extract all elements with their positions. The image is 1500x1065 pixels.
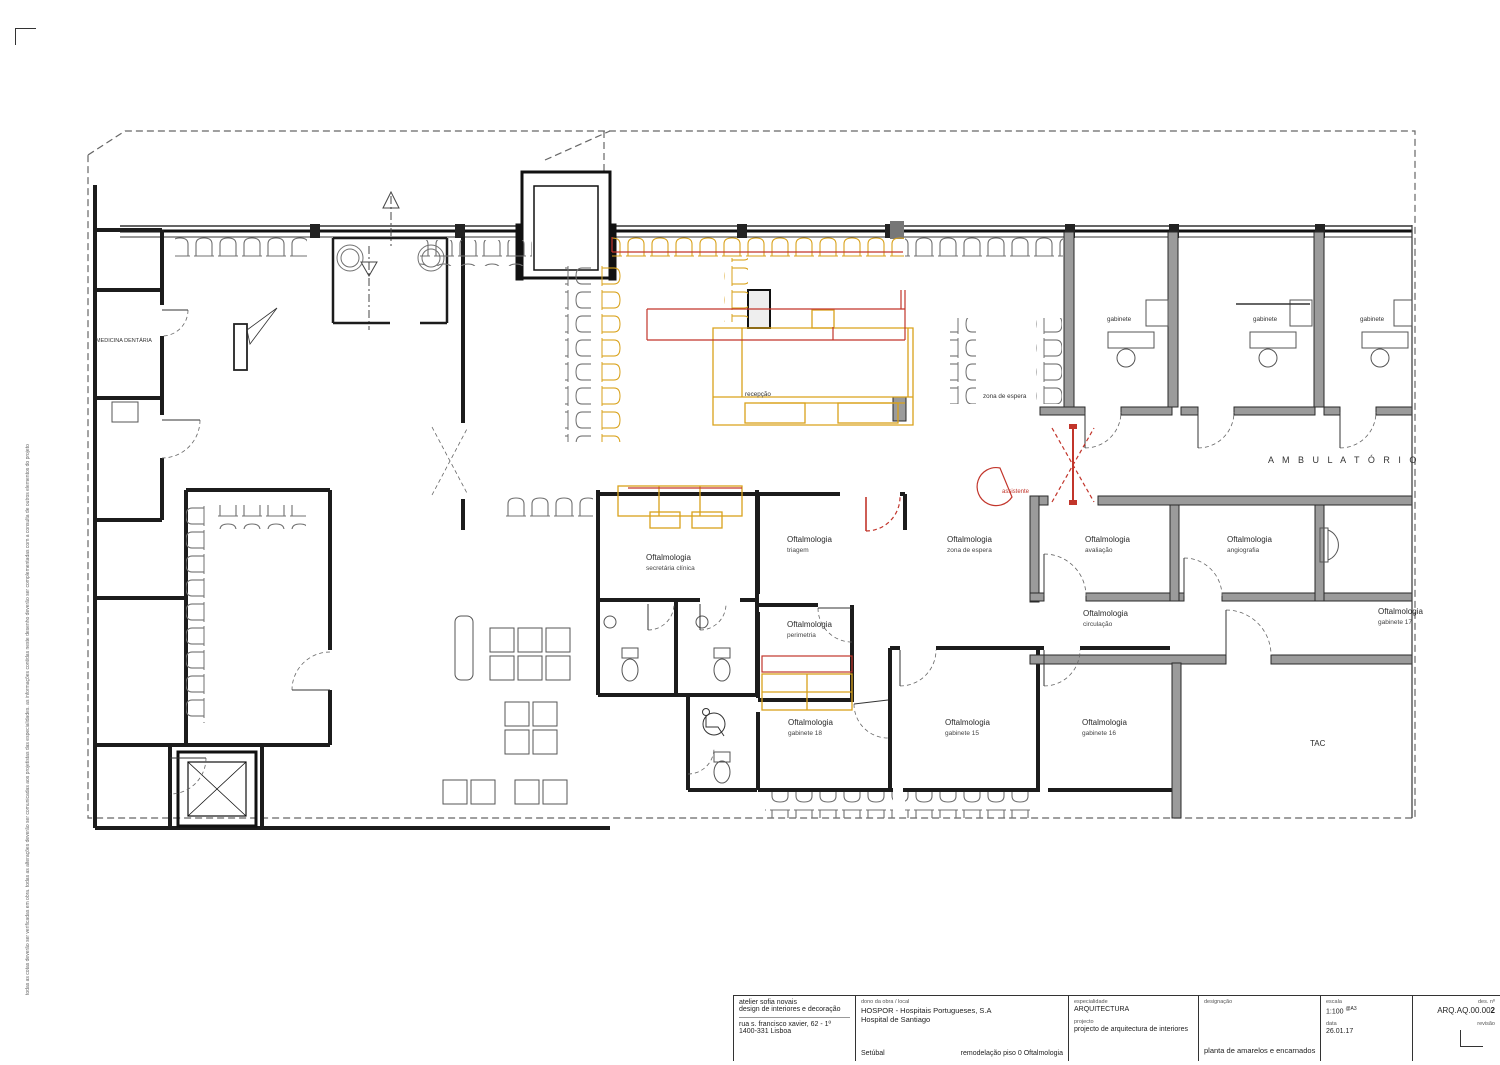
title-block-specialty: especialidade ARQUITECTURA projecto proj… [1068,996,1198,1061]
label-oft-gabinete16: Oftalmologia [1082,718,1127,727]
title-block-architect: atelier sofia novais design de interiore… [733,996,855,1061]
label-oft-gabinete17: Oftalmologia [1378,607,1423,616]
side-note: todas as cotas deverão ser verificadas e… [26,565,32,995]
label-oft-gabinete16-sub: gabinete 16 [1082,730,1116,737]
project-label: projecto [1074,1019,1193,1025]
label-medicina-dentaria: MEDICINA DENTÁRIA [96,337,152,344]
date-label: data [1326,1021,1407,1027]
label-gabinete-2: gabinete [1253,316,1278,323]
title-block: atelier sofia novais design de interiore… [733,995,1500,1061]
label-ambulatorio: A M B U L A T Ó R I O [1268,455,1419,465]
floor-plan: MEDICINA DENTÁRIA recepção zona de esper… [0,0,1500,1060]
label-gabinete-1: gabinete [1107,316,1132,323]
label-oft-secretaria-sub: secretária clínica [646,565,695,572]
owner-site: Hospital de Santiago [861,1015,1063,1024]
owner-label: dono da obra / local [861,999,1063,1005]
label-oft-zona-espera: Oftalmologia [947,535,992,544]
drawing-sheet: todas as cotas deverão ser verificadas e… [0,0,1500,1060]
label-oft-perimetria: Oftalmologia [787,620,832,629]
number-label: des. nº [1418,999,1495,1005]
label-oft-angiografia: Oftalmologia [1227,535,1272,544]
title-block-designation: designação planta de amarelos e encarnad… [1198,996,1320,1061]
scale-value: 1:100 [1326,1008,1344,1015]
drawing-number: ARQ.AQ.00.00 [1437,1006,1490,1015]
scale-format: @A3 [1345,1006,1356,1012]
project-phase: remodelação piso 0 Oftalmologia [961,1050,1063,1057]
owner-city: Setúbal [861,1050,885,1057]
label-oft-gabinete18: Oftalmologia [788,718,833,727]
label-oft-angiografia-sub: angiografia [1227,547,1260,554]
label-tac: TAC [1310,739,1326,748]
label-oft-triagem: Oftalmologia [787,535,832,544]
label-oft-secretaria: Oftalmologia [646,553,691,562]
designation-label: designação [1204,999,1315,1005]
label-oft-gabinete17-sub: gabinete 17 [1378,619,1412,626]
furniture-existing [112,234,1412,818]
label-oft-circulacao-sub: circulação [1083,621,1113,628]
assistant-chair-icon [977,468,1012,506]
specialty-label: especialidade [1074,999,1193,1005]
specialty-value: ARQUITECTURA [1074,1006,1193,1013]
title-block-owner: dono da obra / local HOSPOR - Hospitais … [855,996,1068,1061]
label-oft-gabinete15-sub: gabinete 15 [945,730,979,737]
label-oft-gabinete18-sub: gabinete 18 [788,730,822,737]
label-zona-espera-top: zona de espera [983,393,1027,400]
label-assistente: assistente [1002,489,1030,495]
label-gabinete-3: gabinete [1360,316,1385,323]
owner-name: HOSPOR - Hospitais Portugueses, S.A [861,1006,1063,1015]
architect-address2: 1400-331 Lisboa [739,1028,850,1035]
label-oft-avaliacao: Oftalmologia [1085,535,1130,544]
boundary-dashed [88,131,1415,818]
title-block-number: des. nº ARQ.AQ.00.002 revisão [1412,996,1500,1061]
designation-value: planta de amarelos e encarnados [1204,1046,1315,1055]
title-block-scale: escala 1:100 @A3 data 26.01.17 [1320,996,1412,1061]
date-value: 26.01.17 [1326,1028,1407,1035]
scale-label: escala [1326,999,1407,1005]
label-oft-gabinete15: Oftalmologia [945,718,990,727]
architect-name: atelier sofia novais [739,999,850,1006]
sheet-corner-mark-top-left [15,28,36,45]
label-oft-circulacao: Oftalmologia [1083,609,1128,618]
label-oft-triagem-sub: triagem [787,547,809,554]
label-oft-avaliacao-sub: avaliação [1085,547,1113,554]
wheelchair-icon [703,709,726,737]
doors [162,310,1376,794]
direction-arrows [361,192,399,330]
architect-address1: rua s. francisco xavier, 62 - 1º [739,1021,850,1028]
label-recepcao: recepção [745,391,771,398]
label-oft-zona-espera-sub: zona de espera [947,547,992,554]
elevator-lower-left [178,752,256,826]
revision-label: revisão [1418,1021,1495,1027]
project-value: projecto de arquitectura de interiores [1074,1026,1193,1033]
drawing-number-rev: 2 [1491,1006,1495,1015]
architect-desc: design de interiores e decoração [739,1006,850,1013]
label-oft-perimetria-sub: perimetria [787,632,816,639]
